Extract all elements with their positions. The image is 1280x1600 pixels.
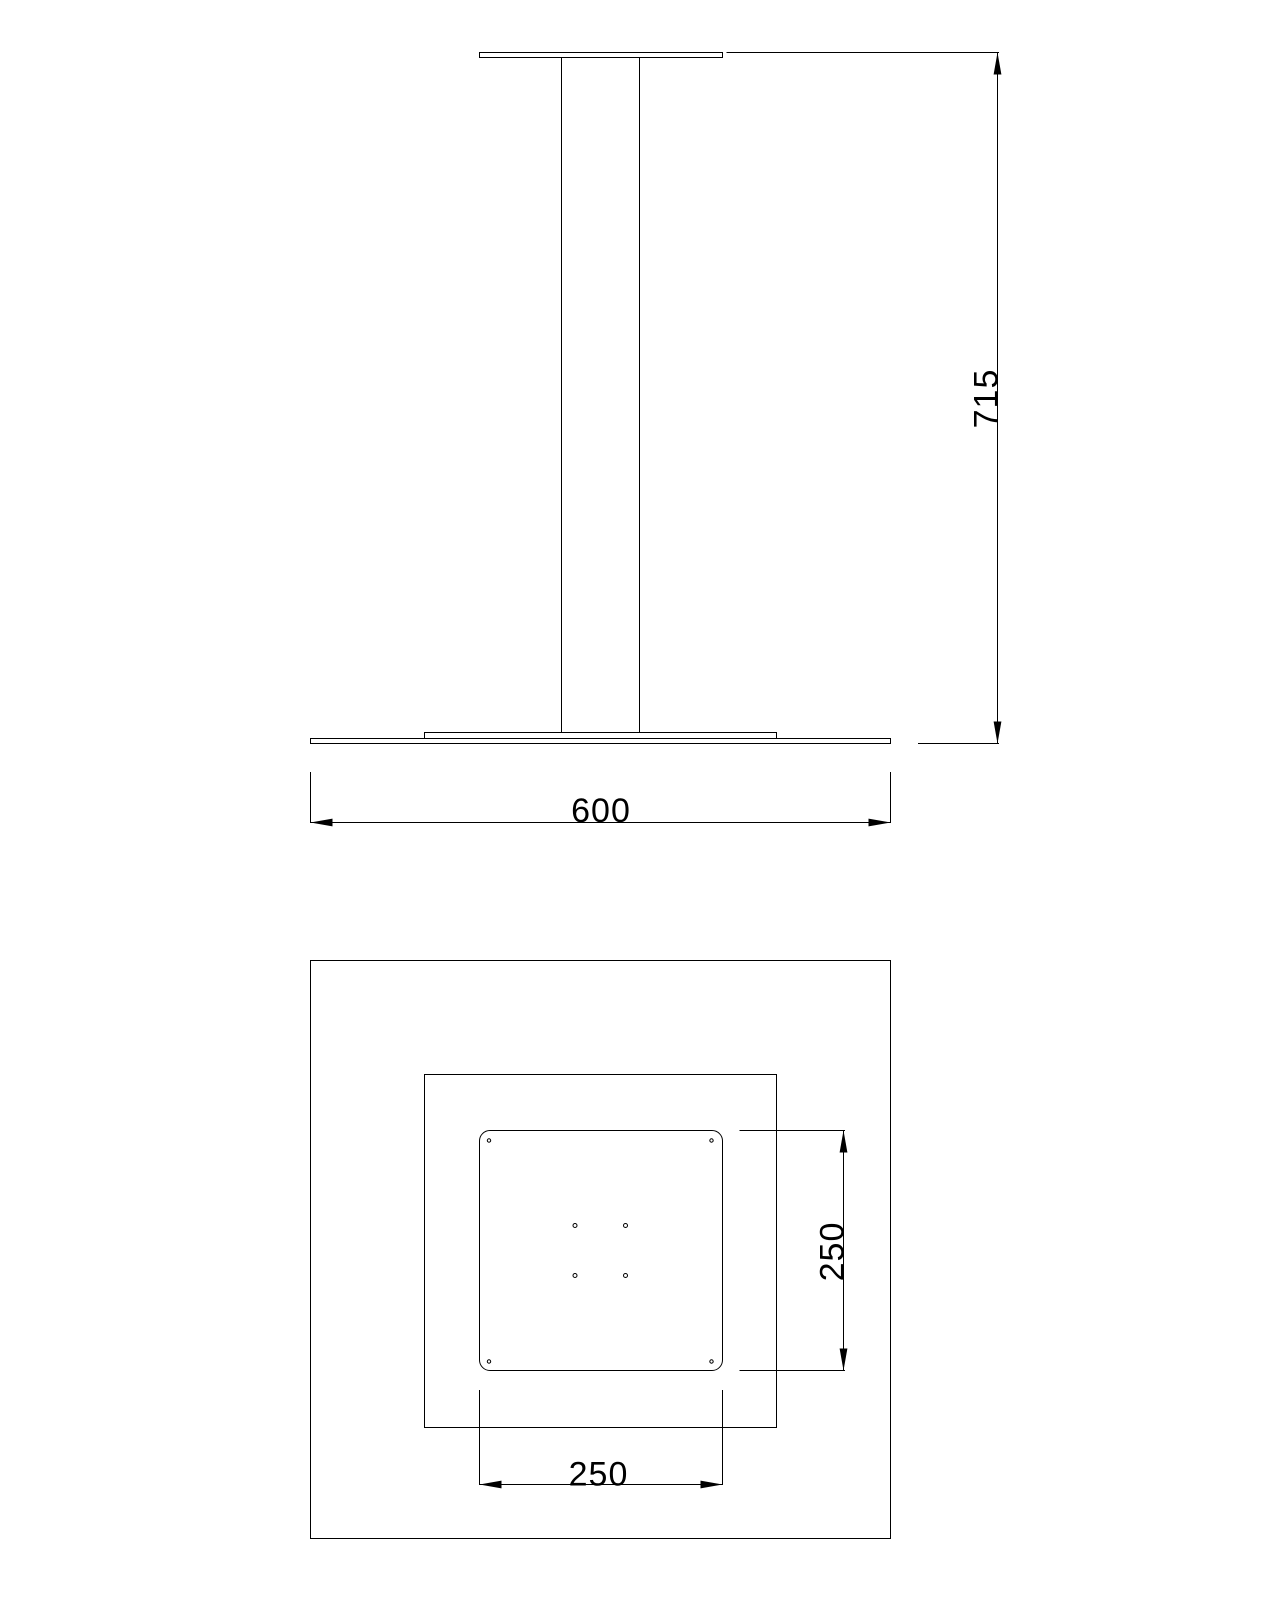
svg-text:715: 715 <box>968 369 1006 429</box>
svg-text:250: 250 <box>814 1222 852 1282</box>
svg-text:250: 250 <box>569 1456 629 1494</box>
svg-text:600: 600 <box>571 792 631 830</box>
